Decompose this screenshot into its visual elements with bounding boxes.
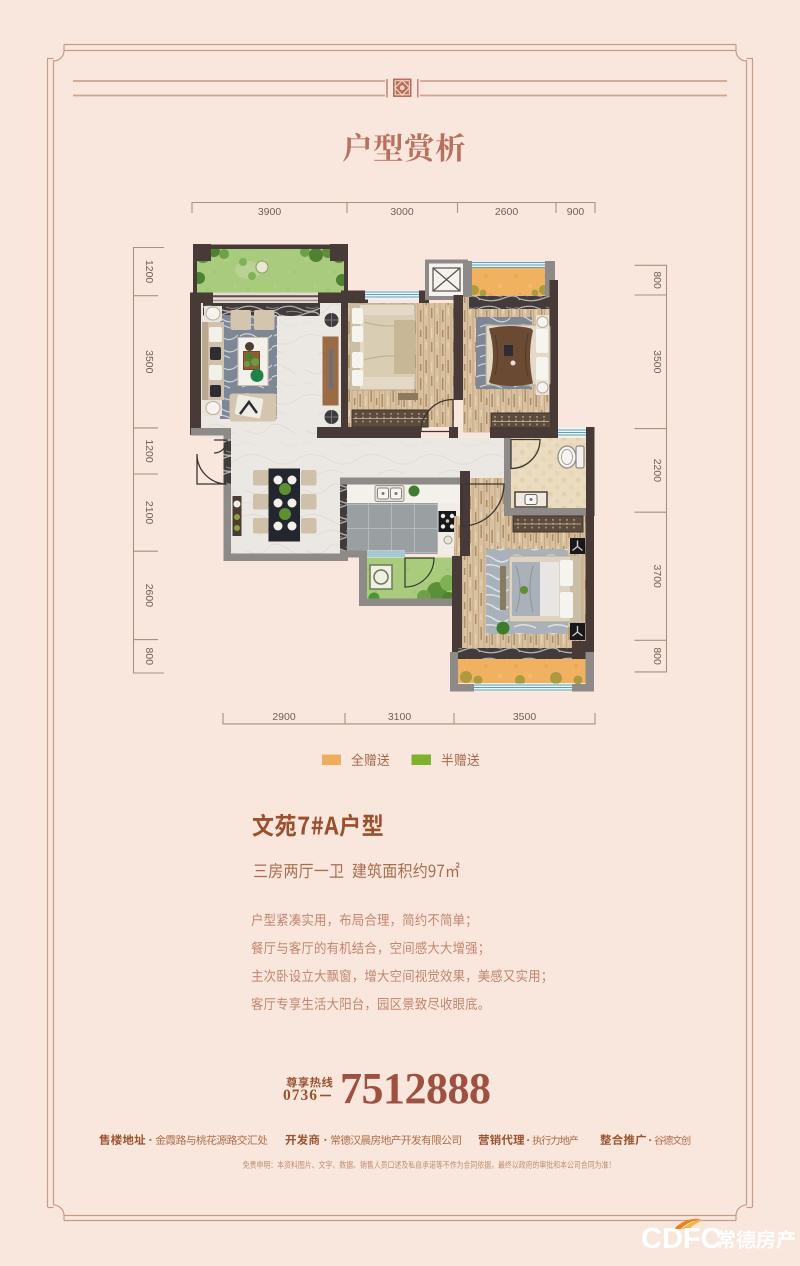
svg-text:800: 800	[651, 647, 663, 665]
svg-text:2100: 2100	[143, 501, 155, 525]
svg-text:1200: 1200	[143, 439, 155, 463]
svg-text:3000: 3000	[390, 206, 414, 218]
svg-text:3500: 3500	[651, 350, 663, 374]
svg-text:3500: 3500	[513, 711, 537, 723]
svg-text:CDFC: CDFC	[641, 1223, 722, 1255]
svg-text:900: 900	[567, 206, 585, 218]
svg-text:800: 800	[651, 271, 663, 289]
svg-text:1200: 1200	[143, 260, 155, 284]
svg-text:800: 800	[143, 648, 155, 666]
svg-text:2600: 2600	[495, 206, 519, 218]
svg-text:2900: 2900	[272, 711, 296, 723]
svg-text:2200: 2200	[651, 459, 663, 483]
svg-text:0736: 0736	[283, 1087, 318, 1104]
svg-text:2600: 2600	[143, 584, 155, 608]
svg-text:3700: 3700	[651, 565, 663, 589]
svg-text:3900: 3900	[258, 206, 282, 218]
svg-text:3500: 3500	[143, 350, 155, 374]
svg-text:3100: 3100	[388, 711, 412, 723]
svg-text:7512888: 7512888	[340, 1064, 491, 1113]
